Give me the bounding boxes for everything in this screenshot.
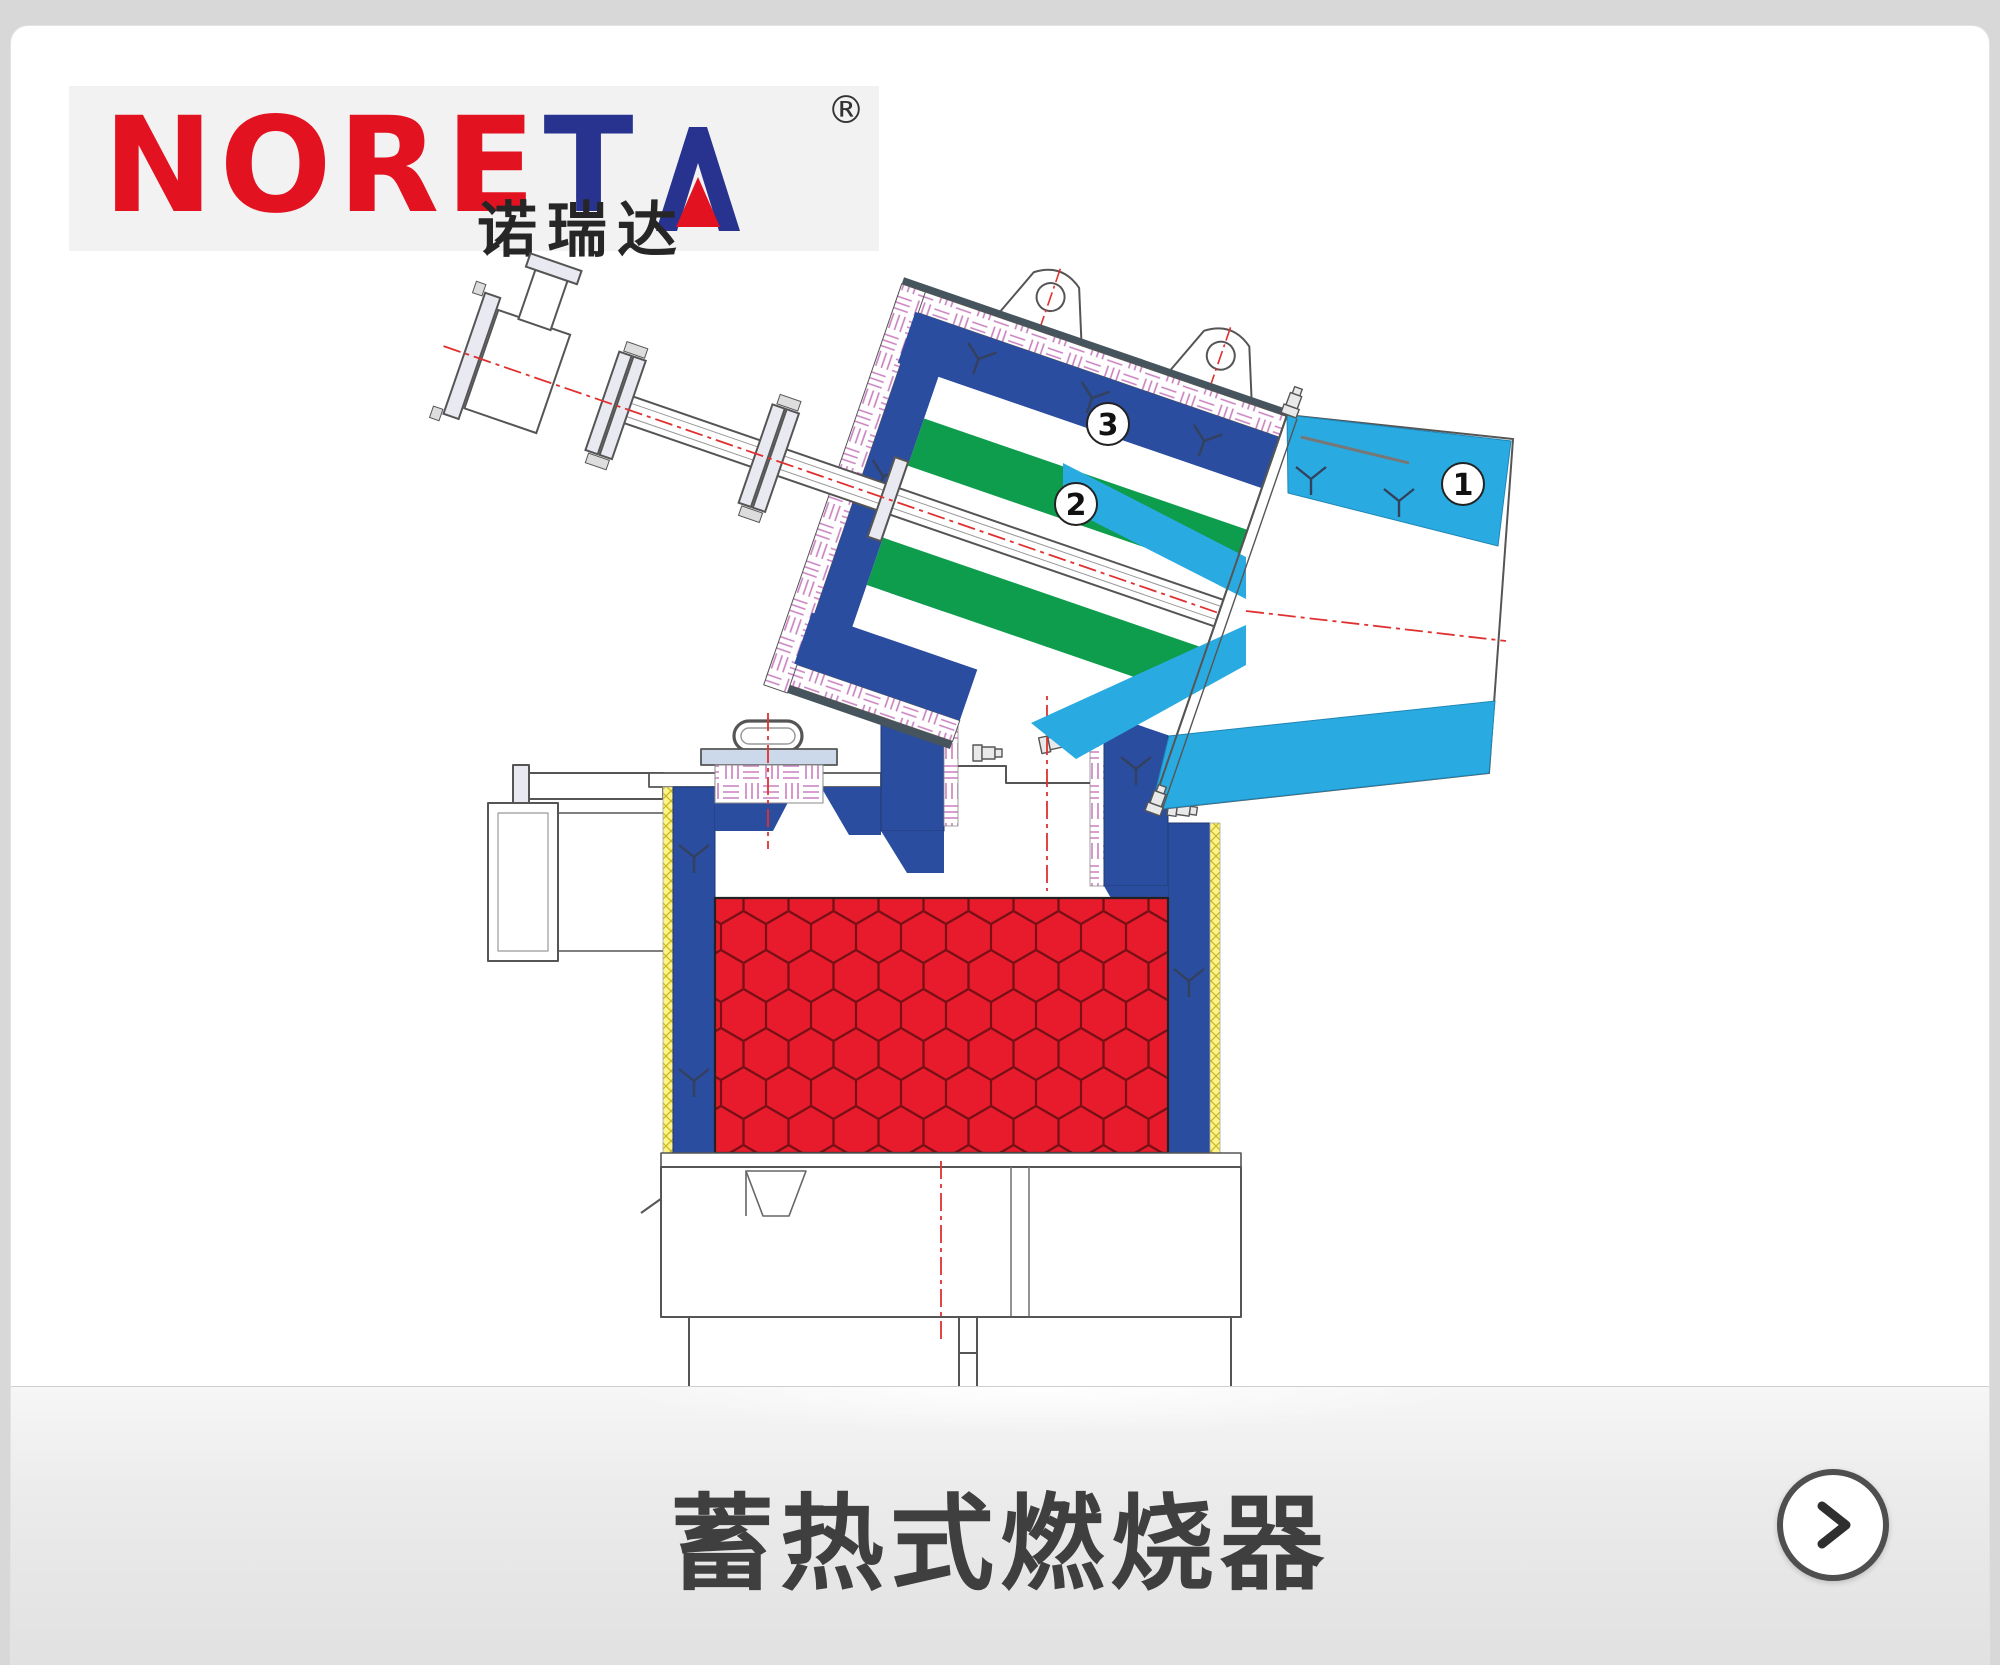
product-title: 蓄热式燃烧器 <box>11 1459 1989 1610</box>
part-label-1: 1 <box>1442 463 1484 505</box>
part-label-2: 2 <box>1055 483 1097 525</box>
left-wall-shell <box>673 787 715 1161</box>
page: NORE T ® 诺瑞达 <box>0 0 2000 1665</box>
neck-left-bottom-wedge <box>881 831 944 873</box>
svg-text:1: 1 <box>1453 468 1474 503</box>
left-stub-flange <box>513 765 529 807</box>
caption-bar: 蓄热式燃烧器 <box>11 1386 1989 1665</box>
heat-storage-honeycomb <box>715 898 1168 1153</box>
burner-section-diagram: 1 2 3 <box>11 26 1989 1386</box>
next-button[interactable] <box>1777 1469 1889 1581</box>
chevron-right-icon <box>1801 1493 1865 1557</box>
bottom-support <box>661 1153 1241 1386</box>
step-plate <box>958 766 1090 783</box>
bolt-icon <box>973 745 1002 761</box>
bolt-icon <box>1281 385 1306 418</box>
svg-text:3: 3 <box>1098 408 1119 443</box>
side-door <box>488 803 663 961</box>
left-wall-yellow-insulation <box>663 787 673 1161</box>
right-wall-yellow-insulation <box>1210 823 1220 1161</box>
svg-text:2: 2 <box>1066 488 1087 523</box>
content-card: NORE T ® 诺瑞达 <box>10 25 1990 1665</box>
roof-lining-wedge <box>821 787 881 835</box>
part-label-3: 3 <box>1087 403 1129 445</box>
left-stub-pipe <box>529 773 663 799</box>
